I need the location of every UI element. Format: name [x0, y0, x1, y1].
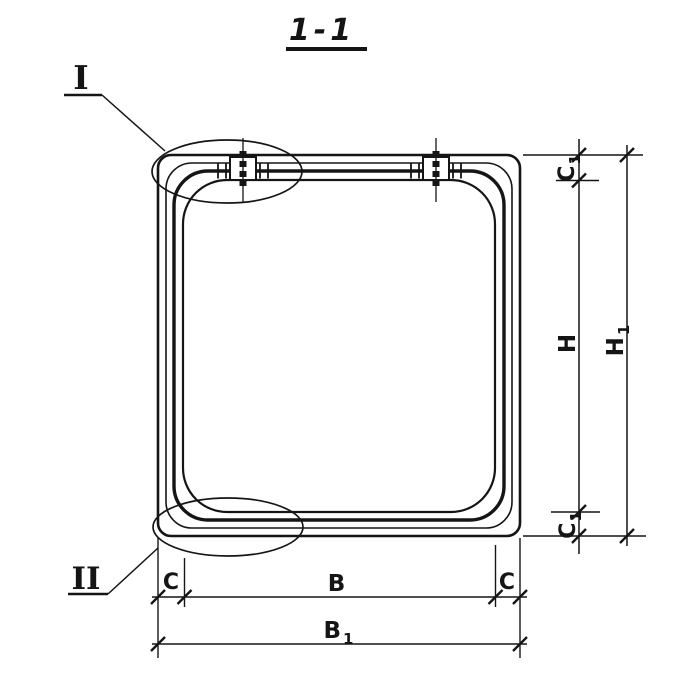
- view-title: 1-1: [289, 13, 355, 48]
- section-1-1-drawing: 1-1 I II: [0, 0, 700, 700]
- detail-circle-2: [153, 498, 303, 556]
- inner-opening-outline: [183, 180, 495, 512]
- dim-label-c-right: C: [499, 570, 515, 595]
- detail-marker-2-leader: [108, 548, 158, 594]
- dim-label-c1-bottom: C1: [556, 511, 585, 539]
- dim-label-c-left: C: [163, 570, 179, 595]
- dim-label-b1: B1: [324, 618, 355, 648]
- detail-marker-1-label: I: [73, 58, 88, 97]
- embedded-anchor-right: [411, 138, 461, 202]
- drawing-sheet: 1-1 I II: [0, 0, 700, 700]
- detail-marker-2: II: [68, 548, 158, 597]
- dim-label-h: H: [555, 333, 581, 353]
- dim-label-c1-top: C1: [555, 154, 584, 182]
- dim-label-h1: H1: [603, 324, 633, 357]
- section-walls: [158, 155, 520, 536]
- wall-line-inner-1: [166, 163, 512, 528]
- embedded-anchor-left: [218, 138, 268, 202]
- detail-marker-2-label: II: [71, 561, 100, 597]
- dimension-right-side: C1 H H1 C1: [523, 139, 646, 554]
- outer-wall-outline: [158, 155, 520, 536]
- wall-line-inner-2: [174, 171, 504, 520]
- detail-marker-1: I: [64, 58, 165, 151]
- detail-marker-1-leader: [102, 95, 165, 151]
- dim-label-b: B: [328, 571, 347, 597]
